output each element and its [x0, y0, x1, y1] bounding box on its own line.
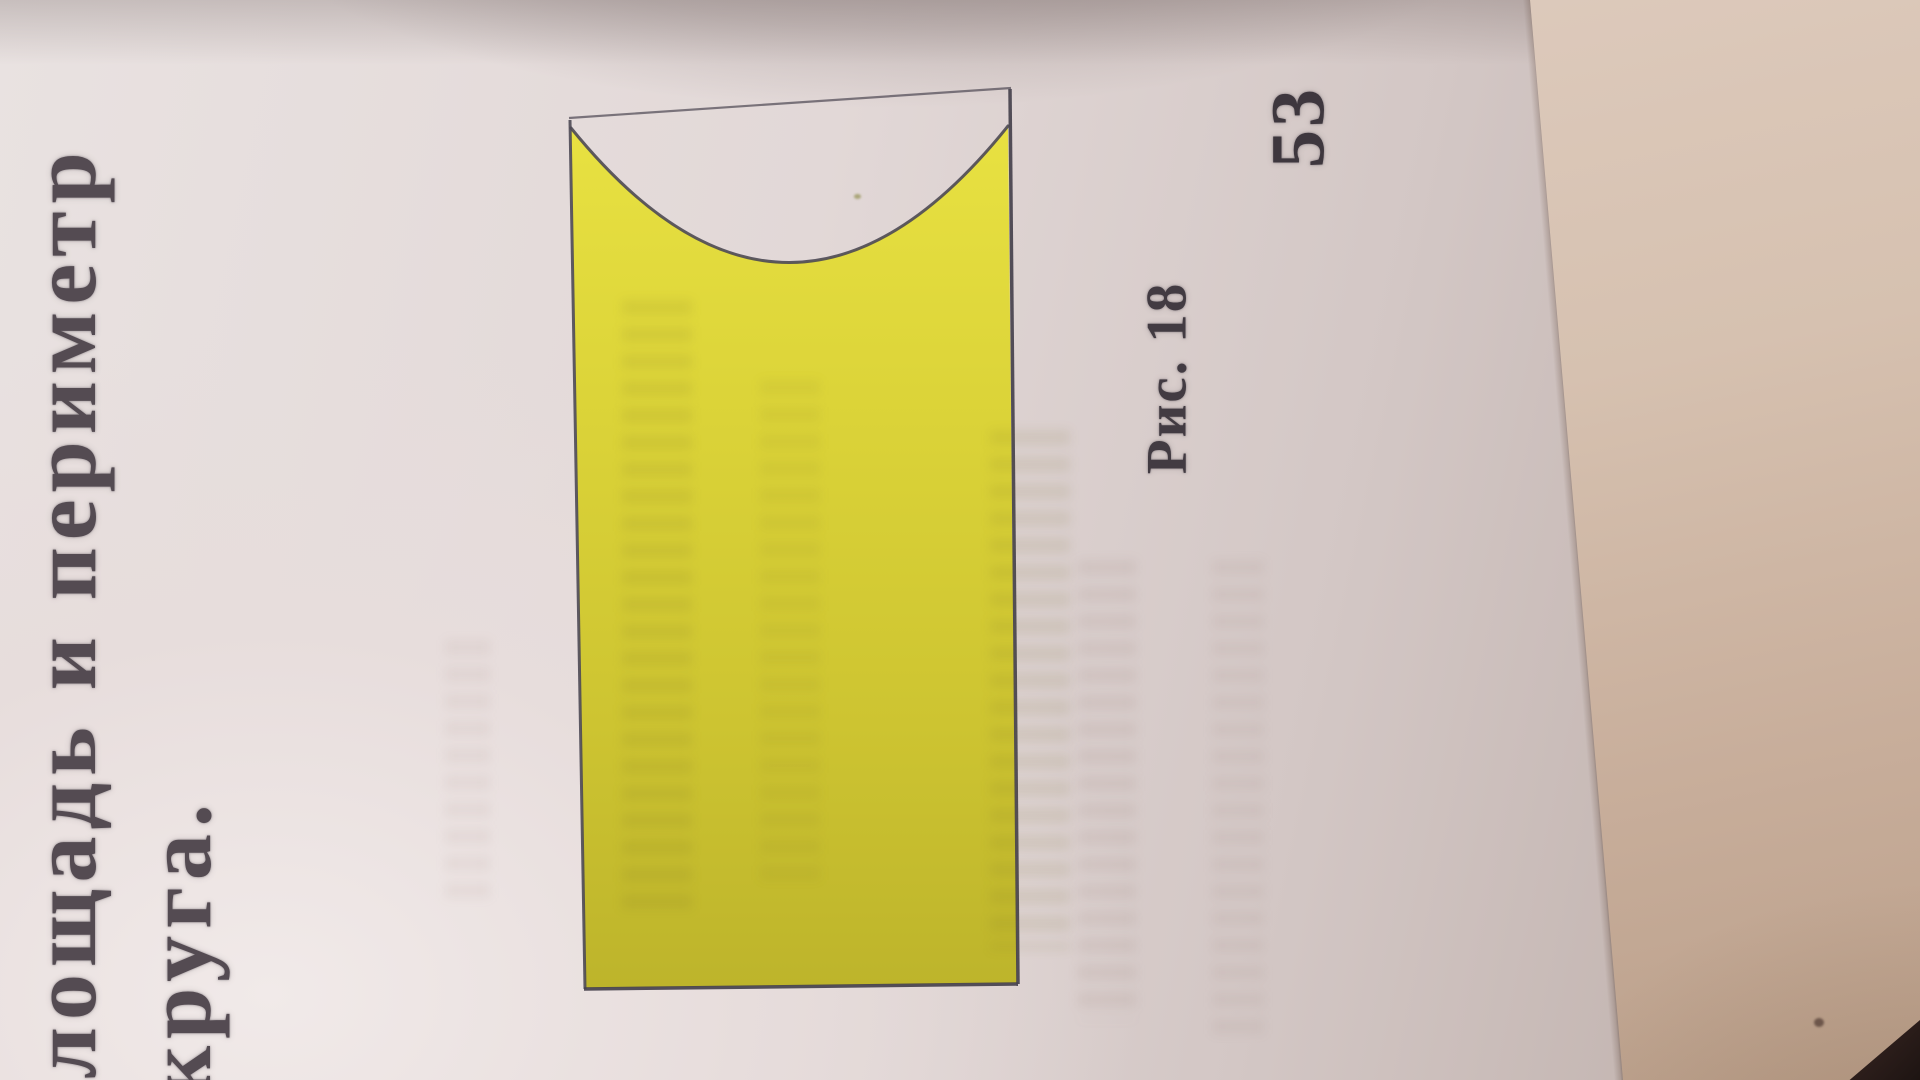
ghost-text-streak [622, 300, 692, 920]
ghost-text-streak [1212, 560, 1264, 1040]
book-photo: лощадь и периметр круга. [0, 0, 1920, 1080]
page-number: 53 [1256, 86, 1343, 168]
speck [1814, 1018, 1824, 1027]
figure-top-chord-line [569, 88, 1011, 118]
ink-fleck [854, 194, 861, 199]
ghost-text-streak [760, 380, 820, 880]
ghost-text-streak [990, 430, 1070, 950]
ghost-text-streak [445, 640, 490, 900]
figure-caption: Рис. 18 [1135, 282, 1200, 474]
ghost-text-streak [1078, 560, 1136, 1020]
